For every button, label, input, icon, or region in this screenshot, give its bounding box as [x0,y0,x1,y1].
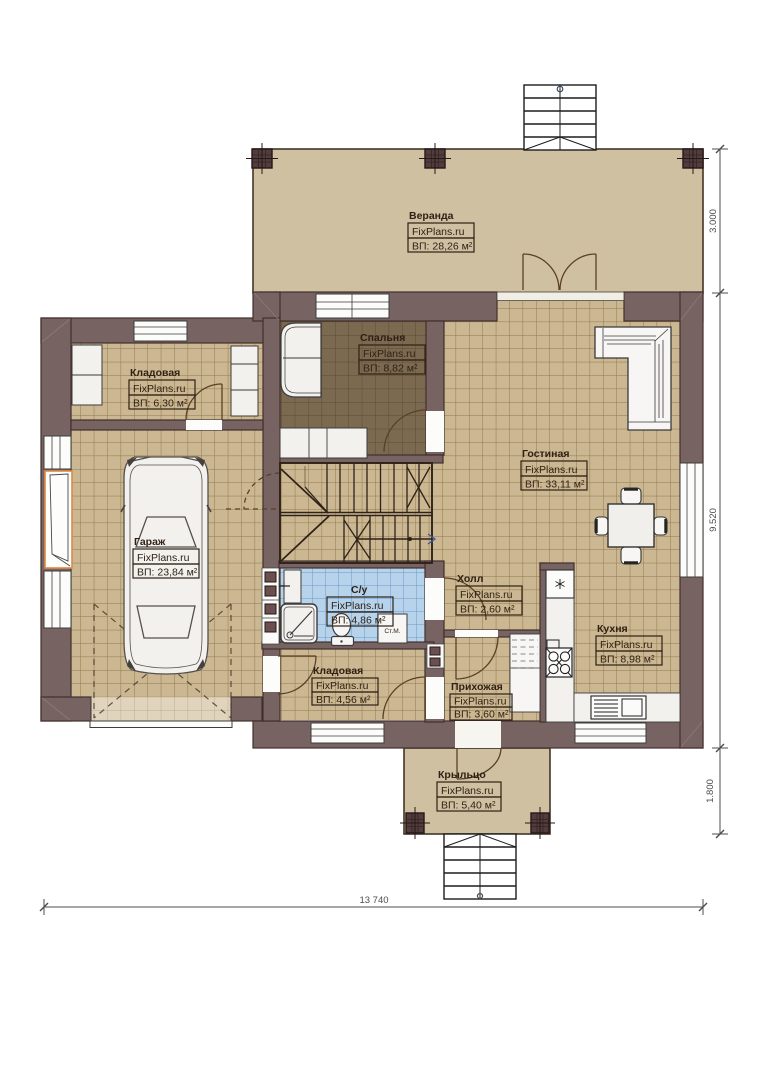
svg-text:ВП: 23,84 м²: ВП: 23,84 м² [137,567,198,579]
svg-text:ВП: 28,26 м²: ВП: 28,26 м² [412,241,473,253]
svg-text:Гараж: Гараж [134,536,166,548]
svg-text:ВП: 4,86 м²: ВП: 4,86 м² [331,615,386,627]
svg-text:С/у: С/у [351,584,368,596]
svg-text:Кладовая: Кладовая [313,665,363,677]
svg-text:FixPlans.ru: FixPlans.ru [600,639,653,651]
svg-text:ВП: 8,98 м²: ВП: 8,98 м² [600,654,655,666]
svg-text:FixPlans.ru: FixPlans.ru [137,552,190,564]
svg-text:FixPlans.ru: FixPlans.ru [331,600,384,612]
svg-text:ВП: 4,56 м²: ВП: 4,56 м² [316,694,371,706]
svg-text:Спальня: Спальня [360,332,405,344]
svg-text:Крыльцо: Крыльцо [438,769,486,781]
svg-text:ВП: 3,60 м²: ВП: 3,60 м² [454,709,509,721]
svg-text:ВП: 5,40 м²: ВП: 5,40 м² [441,800,496,812]
svg-text:ВП: 6,30 м²: ВП: 6,30 м² [133,398,188,410]
svg-text:FixPlans.ru: FixPlans.ru [460,589,513,601]
svg-text:9.520: 9.520 [708,508,719,532]
svg-text:1.800: 1.800 [705,779,716,803]
svg-text:ВП: 2,60 м²: ВП: 2,60 м² [460,604,515,616]
svg-text:FixPlans.ru: FixPlans.ru [412,226,465,238]
svg-text:Кладовая: Кладовая [130,367,180,379]
svg-text:FixPlans.ru: FixPlans.ru [441,785,494,797]
svg-text:ВП: 33,11 м²: ВП: 33,11 м² [525,479,585,491]
svg-text:Гостиная: Гостиная [522,448,569,460]
svg-text:FixPlans.ru: FixPlans.ru [525,464,578,476]
svg-text:13 740: 13 740 [359,895,388,906]
svg-text:FixPlans.ru: FixPlans.ru [133,383,186,395]
svg-text:Ст.М.: Ст.М. [384,628,400,635]
svg-text:FixPlans.ru: FixPlans.ru [363,348,416,360]
svg-text:Веранда: Веранда [409,210,454,222]
svg-text:FixPlans.ru: FixPlans.ru [316,680,369,692]
svg-text:3.000: 3.000 [708,209,719,233]
svg-text:Прихожая: Прихожая [451,681,503,693]
svg-text:Кухня: Кухня [597,623,628,635]
svg-text:ВП: 8,82 м²: ВП: 8,82 м² [363,363,418,375]
svg-text:FixPlans.ru: FixPlans.ru [454,696,507,708]
svg-text:Холл: Холл [457,573,483,585]
